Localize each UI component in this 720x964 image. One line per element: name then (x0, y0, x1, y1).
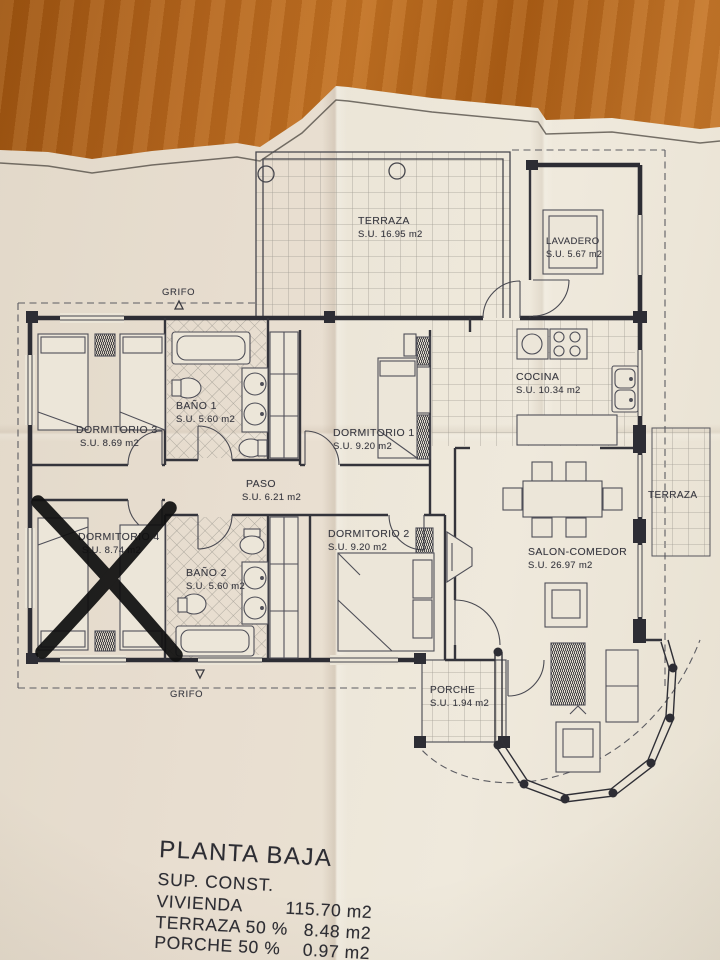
photo-of-floorplan: TERRAZA S.U. 16.95 m2 LAVADERO S.U. 5.67… (0, 0, 720, 960)
